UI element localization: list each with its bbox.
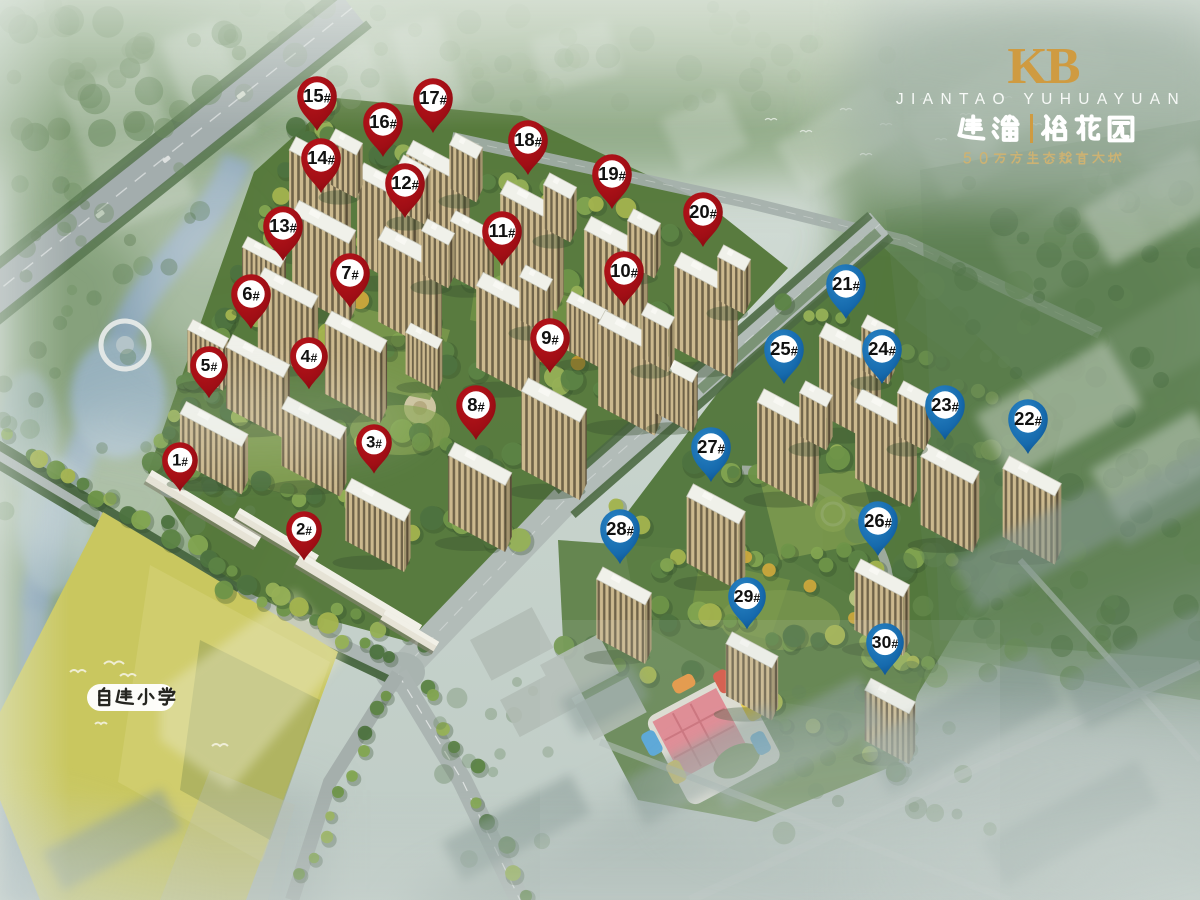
svg-text:KB: KB — [1007, 38, 1079, 95]
svg-text:JIANTAO YUHUAYUAN: JIANTAO YUHUAYUAN — [896, 91, 1186, 108]
